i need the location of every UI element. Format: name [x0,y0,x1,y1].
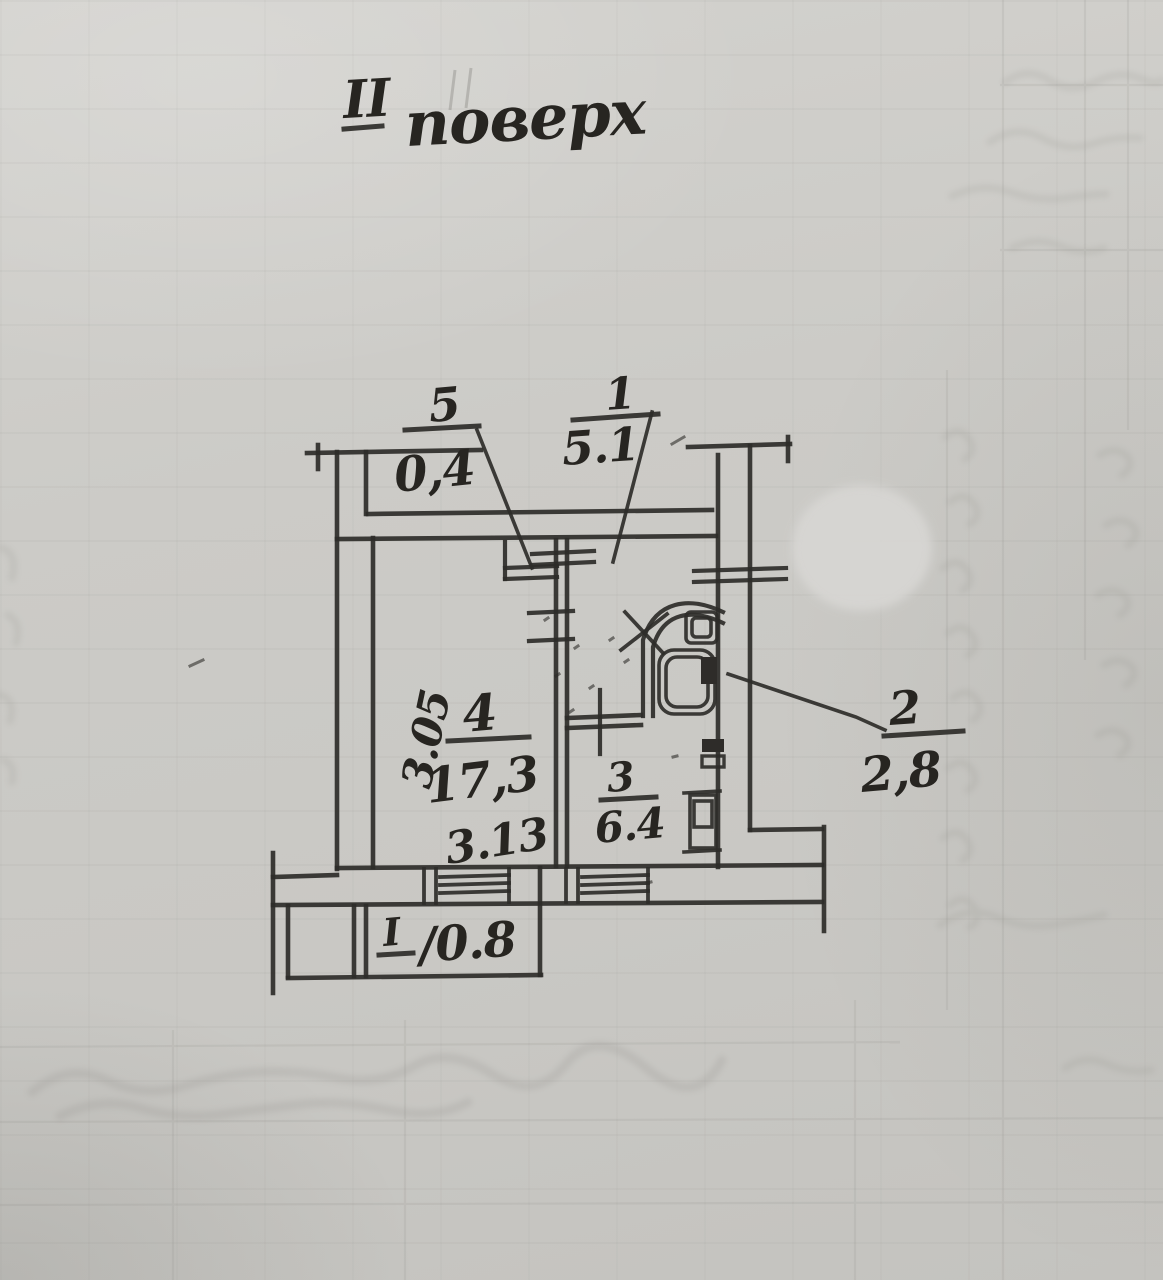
wall-partition-kitchen [567,715,641,728]
room-hallway-number: 1 [603,368,636,421]
toilet-icon [701,657,717,684]
room-hallway-area: 5.1 [560,417,641,476]
window-living-room-icon [424,869,509,903]
room-bathroom-area: 2,8 [857,741,944,804]
room-living-number: 4 [460,682,499,744]
stove-icon [684,791,720,852]
vent-shaft-icon [702,739,724,767]
wall-partition-vertical [556,540,567,866]
room-bathroom-number: 2 [886,680,922,736]
correction-blob [792,485,932,611]
closet-outline [505,542,557,579]
room-kitchen-area: 6.4 [593,798,667,853]
floor-title-numeral: II [339,67,393,131]
balcony-area: /0.8 [413,911,518,974]
floor-title-word: поверх [403,75,649,161]
bleed-through-smudges [0,73,1161,1116]
window-kitchen-icon [566,869,648,902]
room-kitchen-number: 3 [605,753,636,802]
room-closet-area: 0,4 [391,440,477,504]
scanned-floor-plan-page: { "document": { "title": { "numeral": "I… [0,0,1163,1280]
room-closet-number: 5 [426,376,462,432]
balcony-number: I [380,908,404,955]
floor-plan: II поверх 5 0,4 1 5.1 2 2,8 4 17,3 3 6.4… [0,0,1163,1280]
